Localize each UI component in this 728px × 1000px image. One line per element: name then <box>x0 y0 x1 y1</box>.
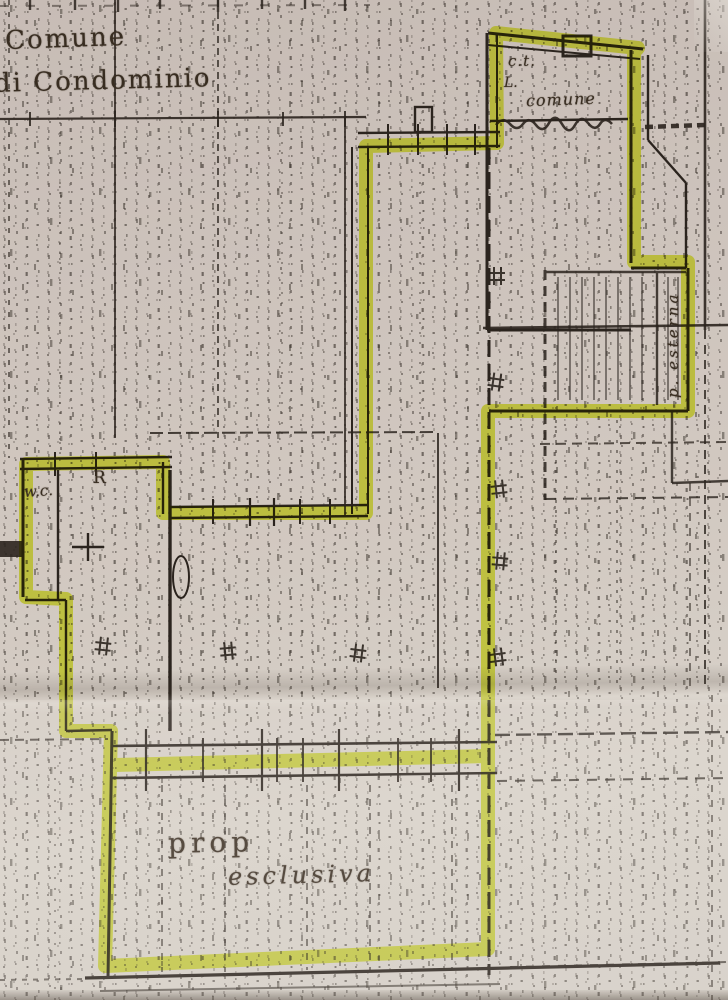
label-room-r: R <box>93 468 106 488</box>
label-esclusiva: esclusiva <box>228 859 376 891</box>
floor-plan-scan: Comune di Condominio c.t. L. comune p. e… <box>0 0 728 1000</box>
label-p-esterna: p. esterna <box>664 158 682 398</box>
label-prop: prop <box>168 825 255 859</box>
label-comune: Comune <box>5 22 127 56</box>
label-ct-sub: L. <box>504 75 518 91</box>
label-wc: w.c. <box>23 481 53 501</box>
label-di-condominio: di Condominio <box>0 63 212 99</box>
label-comune-small: comune <box>526 89 596 110</box>
plan-drawing <box>0 0 728 1000</box>
label-ct: c.t. <box>508 52 536 70</box>
